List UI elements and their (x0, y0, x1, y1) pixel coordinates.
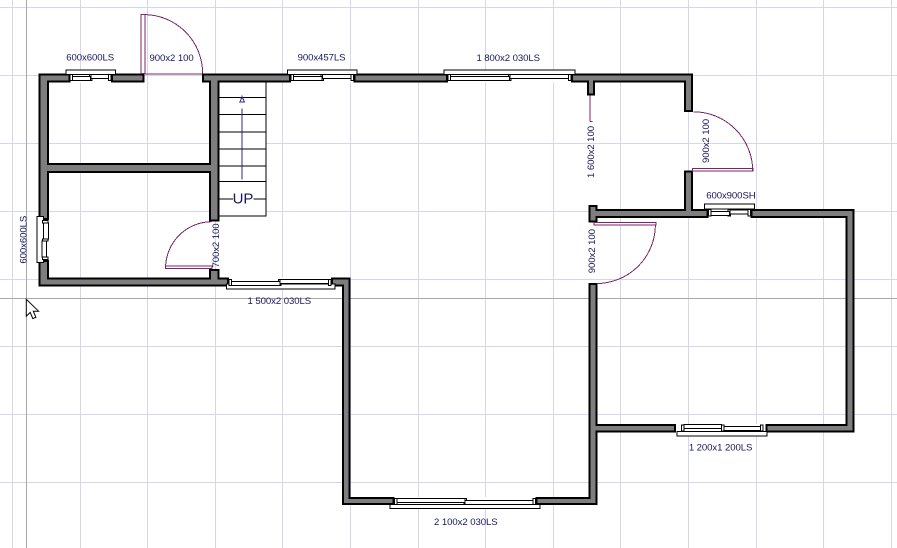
svg-text:600x600LS: 600x600LS (66, 53, 114, 64)
svg-text:2 100x2 030LS: 2 100x2 030LS (434, 517, 498, 528)
svg-text:1 600x2 100: 1 600x2 100 (586, 126, 597, 178)
svg-text:UP: UP (233, 191, 254, 208)
svg-text:600x600LS: 600x600LS (18, 216, 29, 264)
svg-text:600x900SH: 600x900SH (706, 191, 756, 202)
svg-text:900x2 100: 900x2 100 (701, 119, 712, 163)
svg-text:900x2 100: 900x2 100 (587, 229, 598, 273)
svg-text:700x2 100: 700x2 100 (211, 223, 222, 267)
svg-text:900x457LS: 900x457LS (298, 53, 346, 64)
svg-text:1 200x1 200LS: 1 200x1 200LS (689, 442, 753, 453)
svg-text:1 800x2 030LS: 1 800x2 030LS (476, 53, 540, 64)
svg-text:1 500x2 030LS: 1 500x2 030LS (248, 296, 312, 307)
svg-text:900x2 100: 900x2 100 (150, 53, 194, 64)
